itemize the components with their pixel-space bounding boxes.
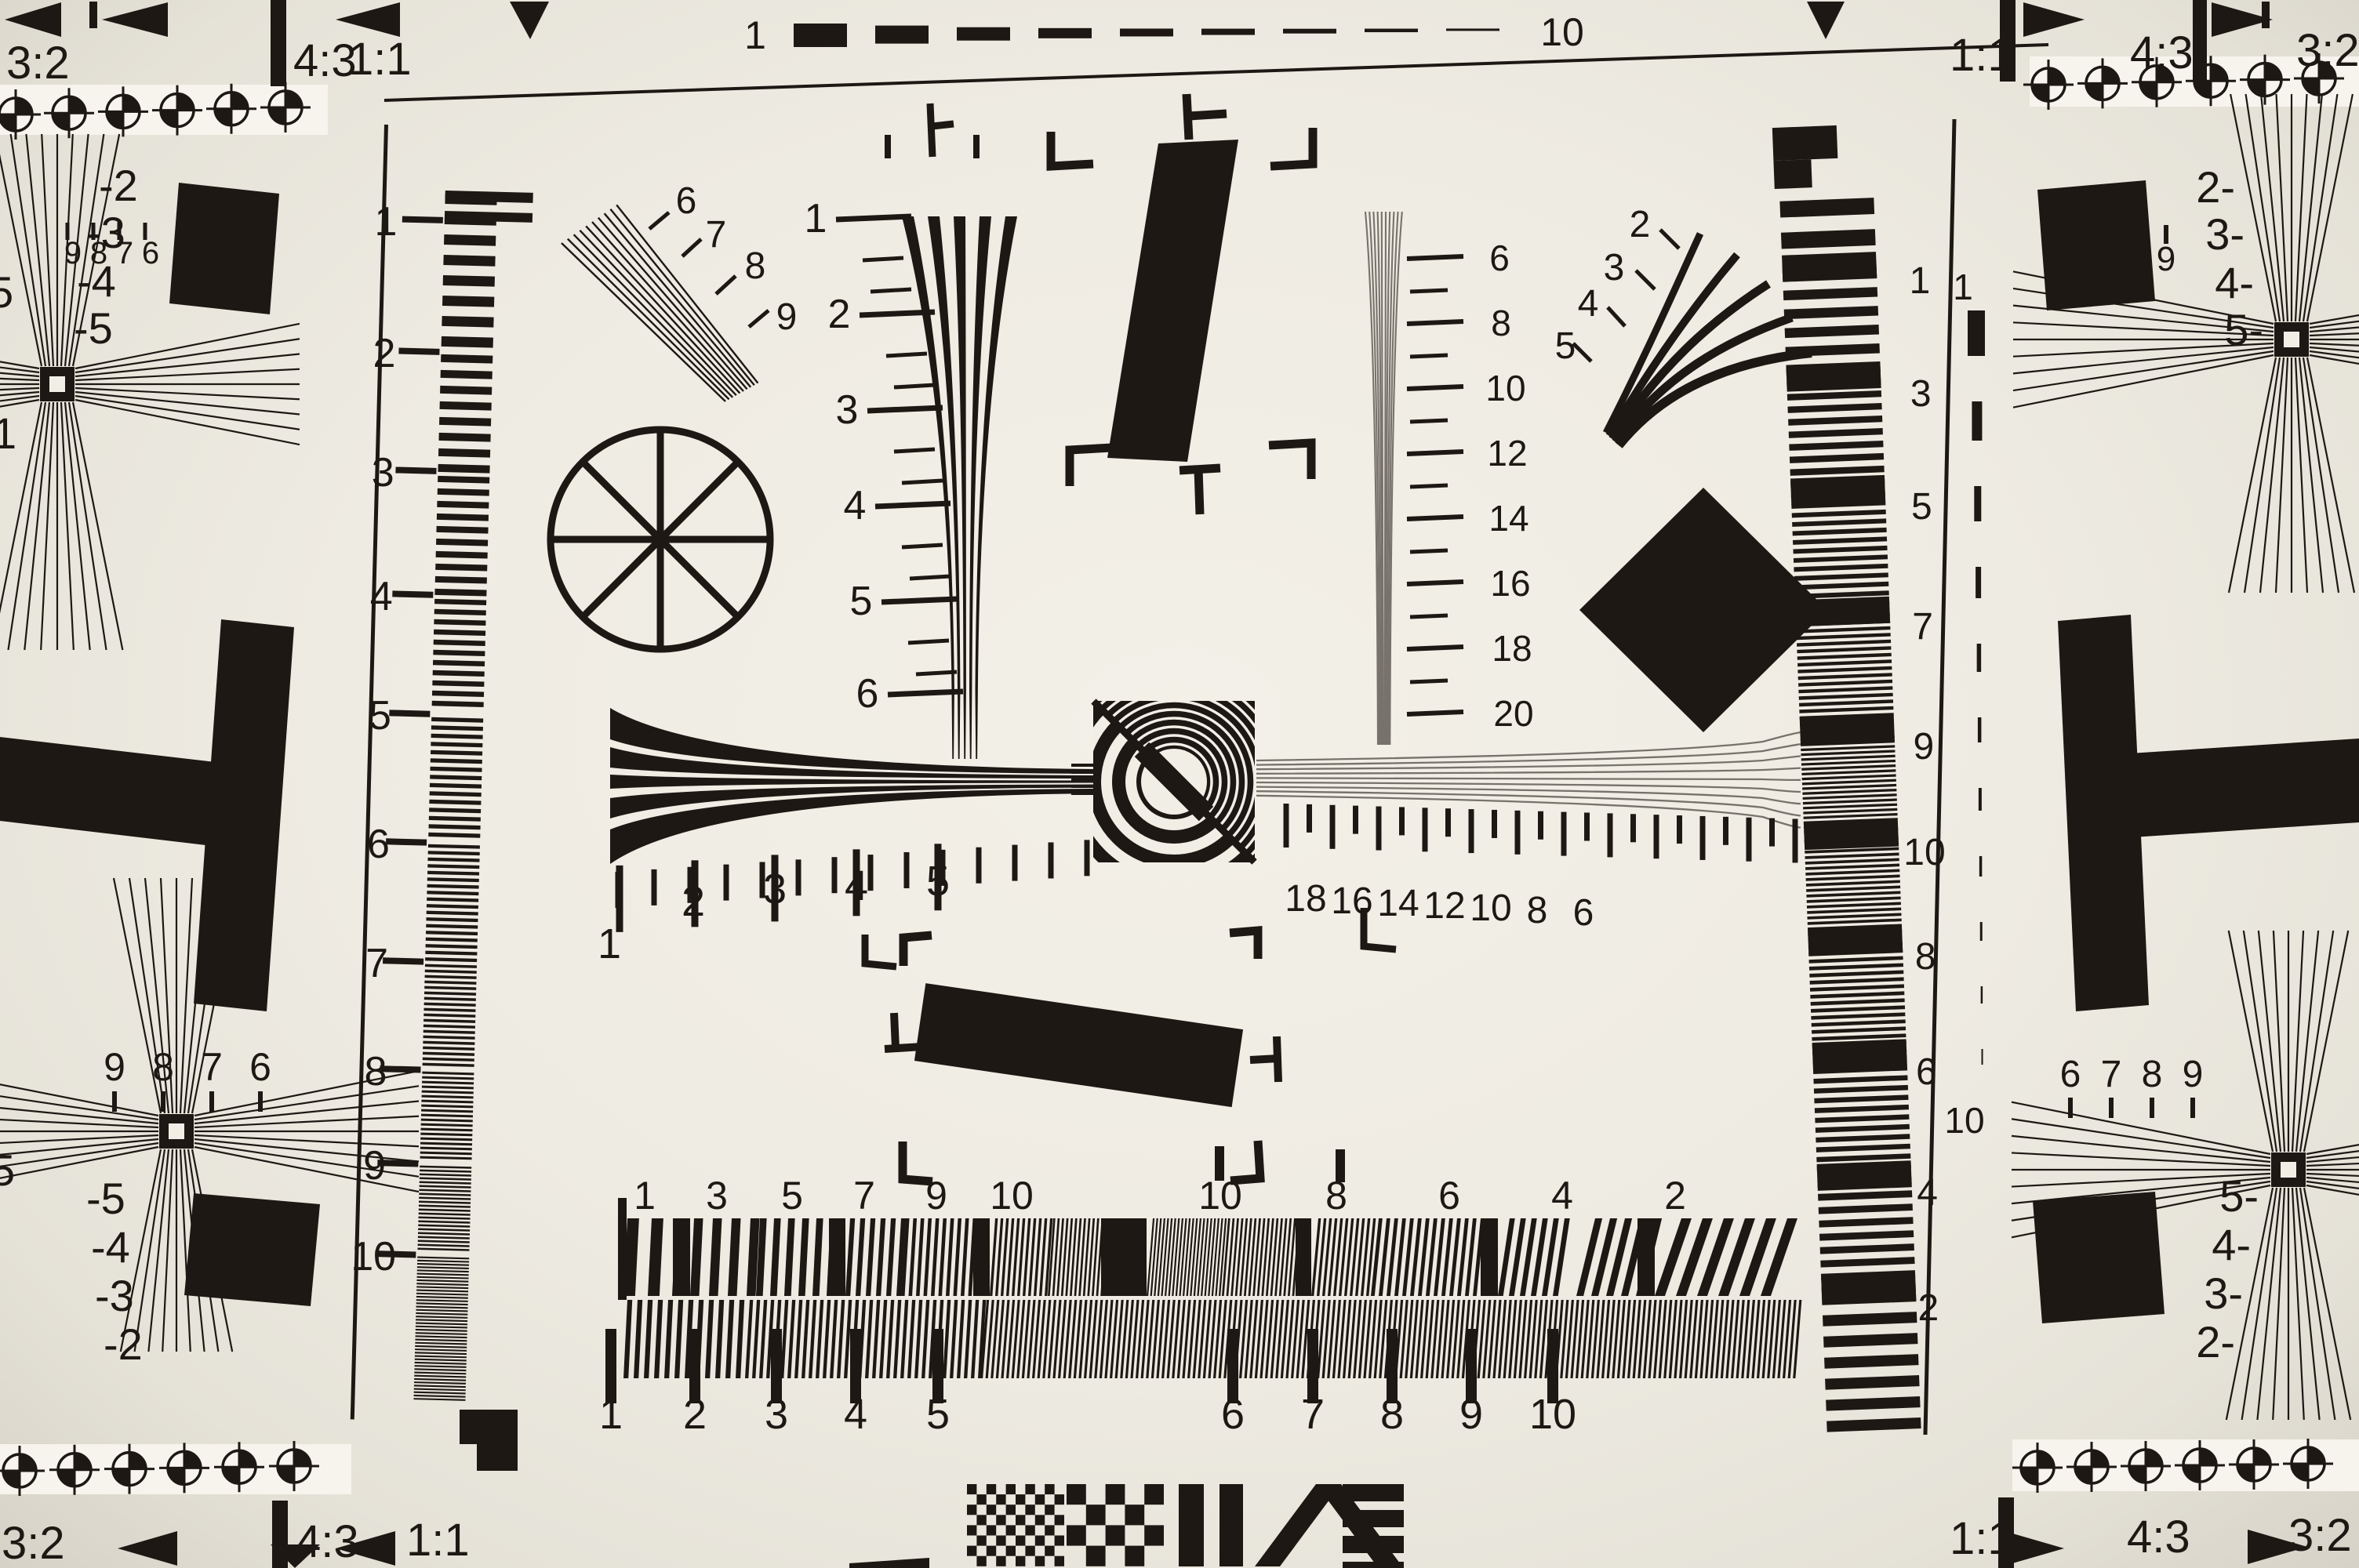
strip-line <box>1807 902 1901 909</box>
strip-line <box>418 1229 470 1232</box>
strip-line <box>423 1008 475 1012</box>
strip-line <box>414 1381 466 1385</box>
slanted-bar <box>914 983 1243 1107</box>
strip-line <box>444 234 496 246</box>
fan-tick <box>1660 230 1679 249</box>
tick <box>1561 812 1567 856</box>
pattern-bar <box>664 1300 673 1378</box>
edge-partial: 1 <box>0 408 16 458</box>
separator <box>1795 597 1890 627</box>
corner-number: 9 <box>2157 240 2175 278</box>
bar-scale-label: 1 <box>634 1174 656 1218</box>
strip-line <box>1806 880 1900 887</box>
strip-line <box>423 1041 474 1045</box>
strip-line <box>1810 991 1904 998</box>
checker-cell <box>1006 1525 1016 1535</box>
strip-line <box>1824 1354 1918 1369</box>
strip-line <box>1805 869 1899 876</box>
strip-line <box>414 1385 466 1388</box>
strip-line <box>427 877 479 882</box>
strip-line <box>414 1371 466 1374</box>
strip-line <box>416 1283 468 1286</box>
fan-line <box>2013 355 2274 408</box>
left-t-bar <box>0 619 294 1011</box>
strip-line <box>1805 853 1899 859</box>
strip-line <box>1812 1019 1906 1026</box>
bar <box>460 1410 518 1444</box>
fan-line <box>2244 931 2277 1152</box>
tick <box>904 852 910 888</box>
strip-line <box>418 1232 470 1236</box>
scale-label: 3 <box>763 866 787 913</box>
ruler-tick <box>395 466 436 474</box>
pattern-bar <box>961 1218 969 1296</box>
t-mark <box>1187 94 1189 140</box>
pattern-bar <box>946 1218 954 1296</box>
fan-label: 9 <box>776 296 798 338</box>
strip-line <box>415 1359 467 1362</box>
strip-line <box>413 1398 465 1401</box>
bar-scale-label: 7 <box>853 1174 875 1218</box>
strip-line <box>420 1166 471 1169</box>
checker-cell <box>1055 1556 1064 1566</box>
scale-tick <box>875 503 951 506</box>
tick <box>1538 811 1543 840</box>
corner-number: 7 <box>201 1045 223 1089</box>
gauge-dash <box>875 26 929 44</box>
strip-line <box>436 539 488 546</box>
scale-tick <box>871 289 911 292</box>
fan-line <box>2276 358 2288 593</box>
strip-line <box>437 501 489 509</box>
scale-label: 6 <box>1573 892 1594 934</box>
bar-scale-label: 10 <box>990 1174 1034 1218</box>
wedge-label: 1 <box>805 196 827 241</box>
strip-line <box>420 1133 472 1137</box>
strip-line <box>1797 659 1892 666</box>
aspect-label: 3:2 <box>2296 25 2359 76</box>
wedge-label: 14 <box>1488 498 1528 539</box>
strip-line <box>430 767 482 772</box>
corner-number: 6 <box>2060 1054 2081 1095</box>
strip-line <box>1825 1375 1919 1390</box>
stop-label: 3- <box>2205 209 2245 259</box>
checker-cell <box>1035 1556 1045 1566</box>
bar-scale-label: 9 <box>925 1174 947 1218</box>
strip-line <box>421 1100 473 1104</box>
tick <box>1376 807 1382 851</box>
checker-cell <box>1006 1504 1016 1515</box>
scale-label: 18 <box>1285 878 1326 920</box>
strip-line <box>416 1326 467 1329</box>
fan-line <box>0 378 39 380</box>
ruler-border <box>351 125 388 1420</box>
strip-line <box>415 1365 467 1368</box>
fan-line <box>75 392 300 415</box>
pattern-bar <box>654 1300 663 1378</box>
strip-line <box>1814 1085 1908 1094</box>
strip-line <box>421 1109 473 1113</box>
scale-tick <box>860 312 935 315</box>
fan-line <box>2306 1174 2359 1177</box>
strip-line <box>418 1240 470 1243</box>
pattern-bar <box>787 1300 795 1378</box>
scale-tick <box>1410 681 1448 682</box>
separator <box>1782 252 1877 282</box>
fan-line <box>2310 343 2359 347</box>
strip-line <box>416 1309 467 1312</box>
tick <box>1085 840 1090 876</box>
scale-tick <box>1410 420 1448 422</box>
bar <box>2262 2 2270 28</box>
fan-label: 3 <box>1604 247 1625 289</box>
pattern-bar <box>909 1218 918 1296</box>
strip-line <box>434 640 485 646</box>
strip-line <box>1798 673 1892 680</box>
fan-line <box>2295 358 2307 593</box>
gray-vertical-wedge <box>1365 212 1463 745</box>
gauge-dash <box>1968 310 1985 356</box>
stop-label: 4- <box>2215 258 2254 307</box>
strip-line <box>417 1273 469 1276</box>
gauge-dash <box>794 24 847 47</box>
bowtie-square-center <box>2284 332 2299 347</box>
separator <box>1790 475 1885 506</box>
tick <box>618 1198 627 1300</box>
strip-line <box>1826 1417 1921 1432</box>
stop-label: -4 <box>77 256 116 306</box>
strip-line <box>417 1269 469 1272</box>
stop-label: 4- <box>2212 1220 2251 1269</box>
fan-line <box>2300 1188 2335 1420</box>
fan-label: 8 <box>745 245 766 287</box>
strip-line <box>434 589 486 597</box>
bar-scale-label: 5 <box>781 1174 803 1218</box>
strip-line <box>1786 343 1880 357</box>
ruler-label: 8 <box>365 1049 387 1094</box>
wedge-label: 6 <box>1489 238 1510 278</box>
checker-cell <box>1045 1546 1054 1556</box>
corner-bracket <box>903 935 932 966</box>
strip-line <box>433 650 485 656</box>
scale-label: 5 <box>926 858 950 905</box>
tick <box>1307 804 1312 833</box>
pattern-bar <box>914 1300 922 1378</box>
strip-line <box>418 1244 470 1247</box>
corner-number: 7 <box>2088 240 2106 278</box>
corner-bracket <box>1270 128 1313 166</box>
strip-line <box>416 1312 467 1316</box>
strip-line <box>442 296 494 307</box>
fan-line <box>2261 94 2284 321</box>
corner-bracket <box>1230 931 1258 959</box>
strip-line <box>1816 1134 1910 1142</box>
tick <box>1723 817 1728 845</box>
strip-line <box>419 1197 471 1200</box>
strip-line <box>1792 518 1886 527</box>
strip-line <box>1797 646 1891 653</box>
pattern-bar <box>939 1218 947 1296</box>
gauge-dash <box>957 27 1010 41</box>
scale-label: 1 <box>598 920 621 967</box>
gauge-dash <box>1982 1049 1983 1065</box>
fan-line <box>2299 94 2322 321</box>
bar-scale-label: 2 <box>683 1391 707 1438</box>
strip-line <box>414 1392 466 1395</box>
strip-line <box>424 986 476 990</box>
scale-tick <box>881 599 957 602</box>
shape <box>118 1531 177 1566</box>
pattern-bar <box>964 1300 972 1378</box>
gauge-dash <box>1120 28 1173 36</box>
checker-cell <box>1006 1546 1016 1556</box>
scale-tick <box>1410 355 1448 357</box>
strip-line <box>1804 813 1898 819</box>
pattern-bar <box>736 1300 744 1378</box>
wedge-label: 16 <box>1490 563 1530 604</box>
tick <box>2109 1098 2114 1118</box>
bar-scale-label: 3 <box>706 1174 728 1218</box>
fan-line <box>75 354 300 376</box>
gauge-dash <box>1283 29 1336 34</box>
pattern-bar <box>907 1300 915 1378</box>
checker-cell <box>1045 1484 1054 1494</box>
gray-line <box>1256 796 1801 828</box>
strip-line <box>422 1091 474 1094</box>
fan-line <box>2299 358 2323 593</box>
strip-line <box>429 808 481 813</box>
strip-line <box>1797 666 1892 673</box>
strip-line <box>1794 582 1888 590</box>
strip-label: 6 <box>1916 1051 1937 1093</box>
strip-line <box>416 1296 468 1299</box>
scale-tick <box>894 385 935 387</box>
fan-line <box>562 243 725 401</box>
strip-line <box>417 1266 469 1269</box>
tick <box>1492 810 1497 838</box>
gauge-label: 1 <box>1953 267 1973 307</box>
fan-line <box>2296 1188 2320 1420</box>
scale-tick <box>902 545 943 547</box>
gauge-dash <box>1976 567 1981 598</box>
strip-line <box>1813 1075 1907 1083</box>
logo-stripe <box>1343 1562 1404 1568</box>
tick <box>112 1091 117 1112</box>
spoked-wheel <box>551 430 770 649</box>
pattern-bar <box>886 1300 894 1378</box>
tick <box>2190 1098 2195 1118</box>
strip-line <box>1807 913 1901 919</box>
corner-number: 8 <box>2142 1054 2163 1095</box>
pattern-bar <box>876 1218 885 1296</box>
strip-line <box>427 871 479 876</box>
wedge-stripe <box>969 216 991 759</box>
checker-cell <box>1086 1504 1106 1525</box>
tick <box>832 857 838 893</box>
strip-line <box>414 1388 466 1391</box>
strip-line <box>1788 416 1882 426</box>
checker-stripe-block <box>967 1484 1404 1568</box>
ruler-label: 6 <box>367 822 390 867</box>
strip-line <box>1799 706 1893 713</box>
ruler-tick <box>402 216 443 223</box>
strip-line <box>429 816 481 822</box>
tick <box>724 865 729 901</box>
strip-line <box>1811 998 1905 1005</box>
strip-line <box>424 997 476 1001</box>
strip-line <box>432 691 484 697</box>
checker-cell <box>987 1546 996 1556</box>
fan-line <box>2304 1188 2350 1420</box>
strip-line <box>416 1319 467 1322</box>
ruler-tick <box>392 590 433 597</box>
scale-tick <box>1407 582 1463 584</box>
strip-line <box>1797 633 1891 640</box>
fan-line <box>2306 1163 2359 1166</box>
strip-line <box>416 1279 468 1283</box>
scale-label: 4 <box>845 862 868 909</box>
wedge-label: 8 <box>1491 303 1511 343</box>
strip-line <box>1798 680 1892 687</box>
strip-line <box>1794 564 1888 572</box>
checker-cell <box>1106 1525 1125 1545</box>
strip-line <box>423 1019 475 1023</box>
fan-line <box>24 402 49 650</box>
strip-line <box>1803 808 1897 815</box>
strip-line <box>417 1276 469 1279</box>
strip-label: 10 <box>1903 832 1945 873</box>
strip-line <box>1779 198 1874 217</box>
fan-line <box>605 213 751 387</box>
strip-line <box>1812 1026 1906 1033</box>
checker-cell <box>1125 1504 1144 1525</box>
scale-label: 12 <box>1423 885 1465 927</box>
shape <box>510 2 549 39</box>
strip-line <box>1796 626 1890 633</box>
bar <box>477 1444 518 1471</box>
checker-cell <box>976 1556 986 1566</box>
scale-label: 2 <box>682 878 705 925</box>
tick <box>1469 809 1474 853</box>
strip-line <box>427 884 479 889</box>
corner-number: 8 <box>2122 240 2141 278</box>
strip-line <box>416 1286 468 1289</box>
strip-line <box>1797 653 1892 660</box>
tick <box>2150 1098 2154 1118</box>
strip-line <box>421 1114 473 1118</box>
strip-line <box>414 1375 466 1378</box>
stop-label: -2 <box>104 1319 143 1369</box>
separator <box>1786 361 1881 392</box>
t-cross <box>2117 739 2359 838</box>
strip-line <box>1805 858 1899 865</box>
strip-line <box>425 975 477 979</box>
strip-line <box>1826 1396 1920 1411</box>
tick <box>1515 811 1521 855</box>
logo-stripe <box>1343 1536 1404 1553</box>
pattern-bar <box>794 1300 802 1378</box>
gauge-dash <box>1446 28 1499 31</box>
strip-line <box>1801 760 1896 766</box>
strip-line <box>441 354 493 364</box>
pattern-bar <box>957 1300 965 1378</box>
pattern-bar <box>830 1300 838 1378</box>
strip-line <box>435 564 487 572</box>
corner-square <box>184 1193 320 1306</box>
strip-line <box>1815 1105 1909 1113</box>
scale-tick <box>894 449 935 452</box>
aspect-label: 1:1 <box>406 1515 470 1566</box>
scale-label: 14 <box>1377 883 1419 924</box>
fan-line <box>2229 358 2276 593</box>
aspect-label: 4:3 <box>2130 27 2194 78</box>
strip-line <box>1807 908 1901 914</box>
stop-label: -3 <box>86 208 125 257</box>
strip-line <box>1805 864 1899 870</box>
logo-stripe <box>1343 1510 1404 1527</box>
bar-scale-label: 4 <box>844 1391 867 1438</box>
bar-scale-label: 8 <box>1380 1391 1404 1438</box>
corner-bracket <box>1269 443 1311 479</box>
scale-label: 16 <box>1331 880 1372 922</box>
slanted-bar <box>1107 140 1238 462</box>
strip-line <box>1819 1230 1914 1240</box>
strip-line <box>1809 970 1903 977</box>
strip-line <box>420 1152 472 1156</box>
strip-line <box>429 800 481 805</box>
strip-line <box>1787 403 1881 413</box>
gauge-dash <box>1972 401 1982 441</box>
checker-cell <box>1055 1494 1064 1504</box>
checker-cell <box>987 1525 996 1535</box>
wedge-label: 10 <box>1485 368 1525 408</box>
pattern-bar <box>623 1300 632 1378</box>
strip-line <box>432 681 484 687</box>
stop-label: 2- <box>2196 162 2235 212</box>
strip-line <box>1784 306 1878 319</box>
scale-tick <box>1407 647 1463 649</box>
checker-cell <box>1045 1504 1054 1515</box>
checker-cell <box>1016 1494 1025 1504</box>
scale-tick <box>1410 485 1448 487</box>
tick <box>258 1091 263 1112</box>
strip-line <box>418 1225 470 1228</box>
fan-line <box>2012 1102 2270 1154</box>
stop-label: 2- <box>2196 1317 2235 1367</box>
strip-line <box>1801 764 1896 771</box>
wedge-label: 12 <box>1487 433 1527 474</box>
strip-line <box>1802 774 1896 780</box>
strip-line <box>415 1355 467 1358</box>
strip-line <box>428 851 480 855</box>
corner-number: 9 <box>2183 1054 2204 1095</box>
strip-line <box>422 1095 474 1099</box>
separator <box>973 1218 990 1296</box>
fan-line <box>41 402 53 650</box>
strip-line <box>443 275 495 287</box>
fan-line <box>2292 1188 2304 1420</box>
fan-line <box>616 205 758 383</box>
ruler-label: 3 <box>372 450 394 495</box>
ruler-tick <box>389 710 430 717</box>
fan-tick <box>1636 270 1655 289</box>
fan-line <box>0 134 42 366</box>
strip-line <box>1789 428 1883 438</box>
bar-scale-label: 1 <box>599 1391 623 1438</box>
strip-line <box>415 1342 467 1345</box>
tick <box>1584 813 1590 841</box>
scale-label: 8 <box>1527 890 1548 931</box>
